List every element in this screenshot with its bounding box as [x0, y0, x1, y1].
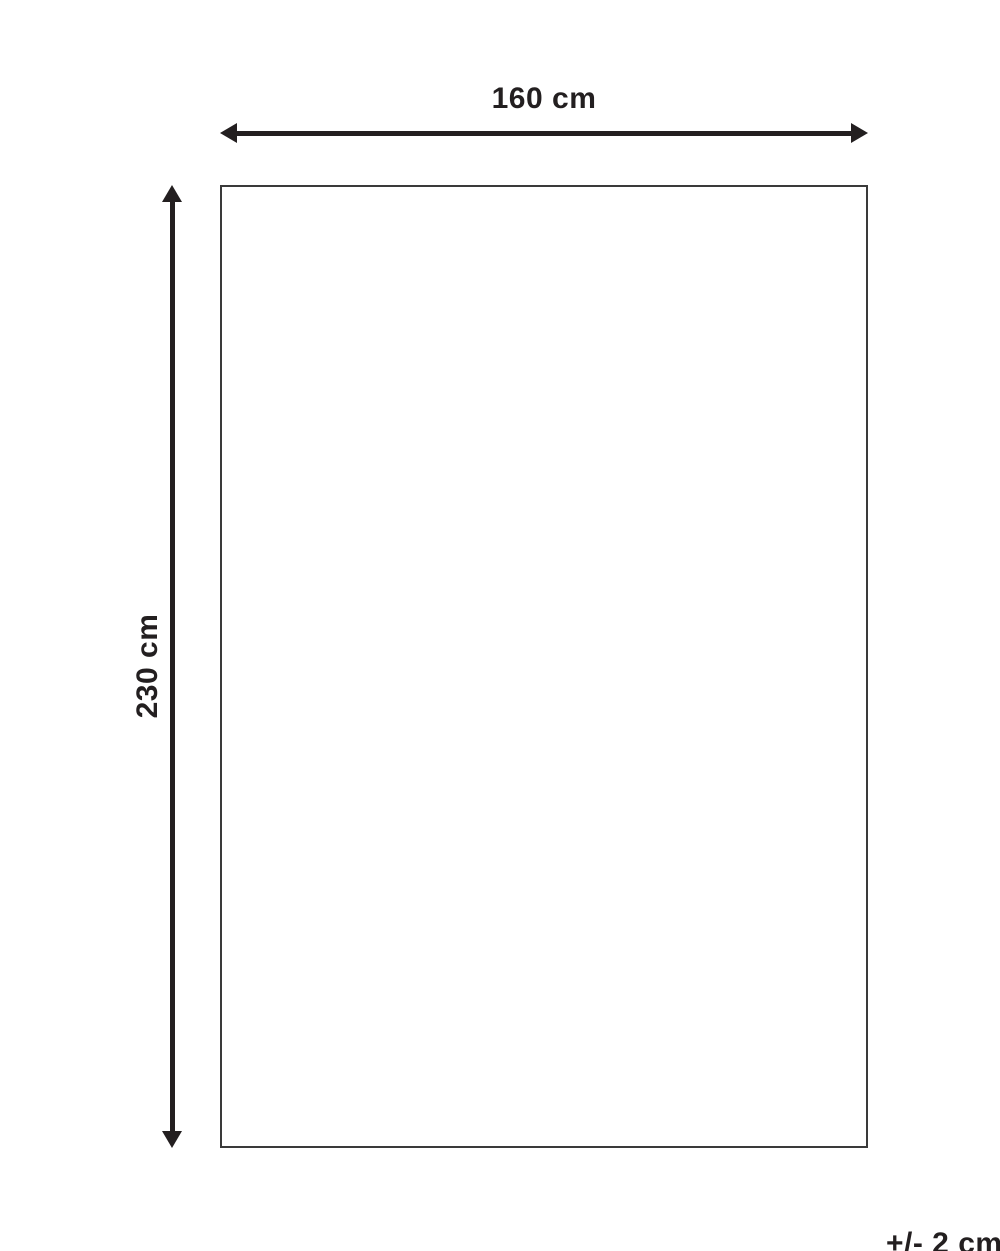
product-outline-rectangle	[220, 185, 868, 1148]
arrow-shaft	[237, 131, 851, 136]
height-dimension-arrow	[162, 185, 182, 1148]
width-dimension-label: 160 cm	[220, 82, 868, 116]
arrow-shaft	[170, 202, 175, 1131]
tolerance-label: +/- 2 cm	[886, 1227, 1000, 1251]
dimension-diagram: 160 cm 230 cm +/- 2 cm	[0, 0, 1000, 1251]
width-dimension-arrow	[220, 123, 868, 143]
arrow-up-icon	[162, 185, 182, 202]
arrow-down-icon	[162, 1131, 182, 1148]
arrow-right-icon	[851, 123, 868, 143]
arrow-left-icon	[220, 123, 237, 143]
height-dimension-label: 230 cm	[131, 614, 165, 719]
